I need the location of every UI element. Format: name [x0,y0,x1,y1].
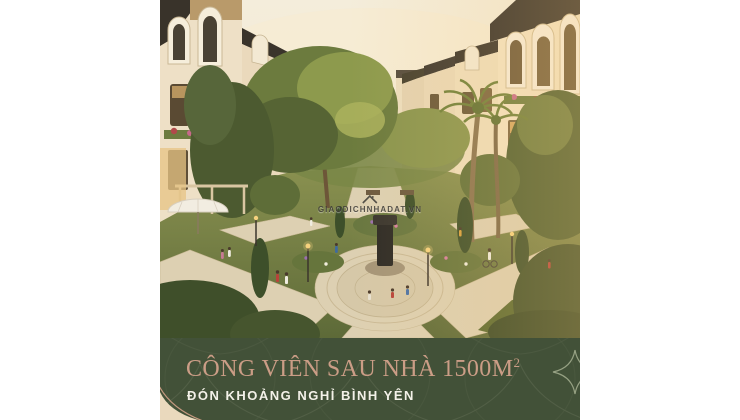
warm-light-overlay [160,0,580,338]
banner-text-block: CÔNG VIÊN SAU NHÀ 1500M2 ĐÓN KHOẢNG NGHỈ… [160,338,580,403]
ad-canvas: GIAODICHNHADAT.VN CÔNG [0,0,740,420]
caption-banner: CÔNG VIÊN SAU NHÀ 1500M2 ĐÓN KHOẢNG NGHỈ… [160,338,580,420]
banner-subtitle: ĐÓN KHOẢNG NGHỈ BÌNH YÊN [187,388,580,403]
real-estate-poster: GIAODICHNHADAT.VN CÔNG [160,0,580,420]
banner-title: CÔNG VIÊN SAU NHÀ 1500M2 [186,350,580,382]
square-meter-superscript: 2 [513,355,520,370]
park-render-scene [160,0,580,338]
